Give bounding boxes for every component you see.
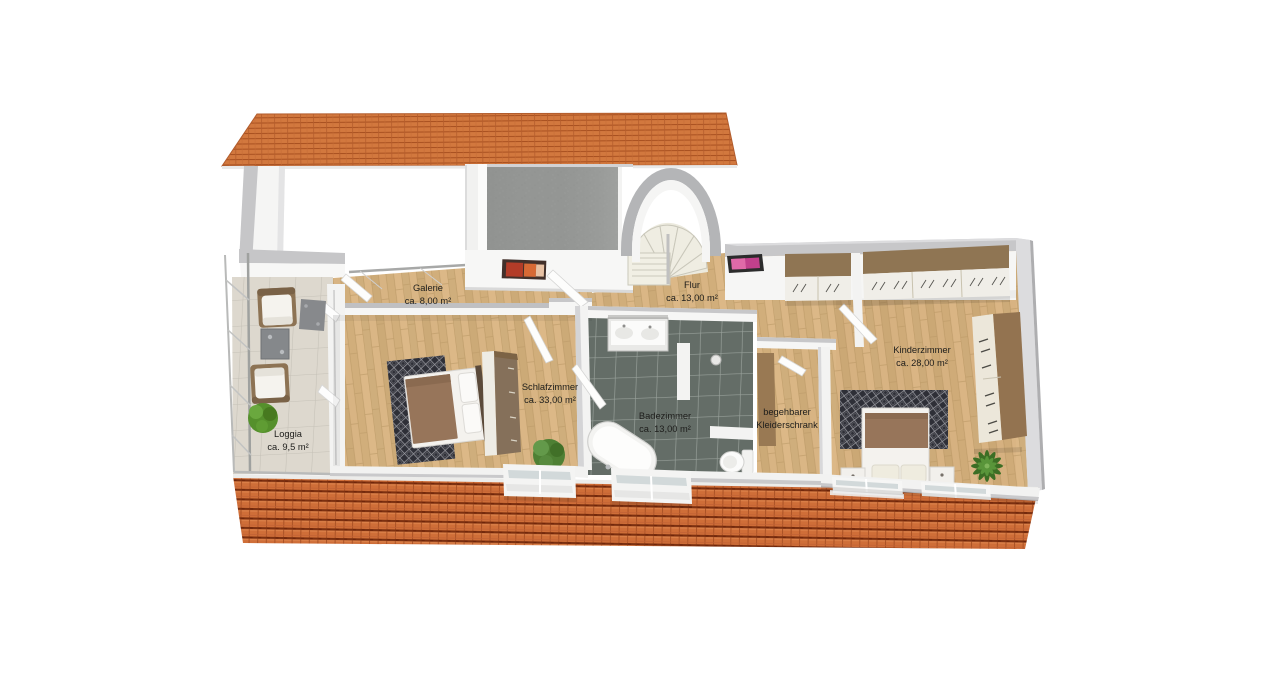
svg-text:Schlafzimmer: Schlafzimmer	[522, 382, 578, 392]
svg-text:ca. 33,00 m²: ca. 33,00 m²	[524, 395, 576, 405]
svg-text:Kleiderschrank: Kleiderschrank	[756, 420, 818, 430]
svg-text:ca. 8,00 m²: ca. 8,00 m²	[405, 296, 452, 306]
svg-text:ca. 13,00 m²: ca. 13,00 m²	[666, 293, 718, 303]
svg-text:Loggia: Loggia	[274, 429, 303, 439]
svg-text:ca. 9,5 m²: ca. 9,5 m²	[267, 442, 308, 452]
svg-text:ca. 13,00 m²: ca. 13,00 m²	[639, 424, 691, 434]
svg-text:Flur: Flur	[684, 280, 700, 290]
svg-text:ca. 28,00 m²: ca. 28,00 m²	[896, 358, 948, 368]
svg-text:Badezimmer: Badezimmer	[639, 411, 691, 421]
svg-text:Kinderzimmer: Kinderzimmer	[893, 345, 950, 355]
svg-text:Galerie: Galerie	[413, 283, 443, 293]
svg-text:begehbarer: begehbarer	[763, 407, 811, 417]
